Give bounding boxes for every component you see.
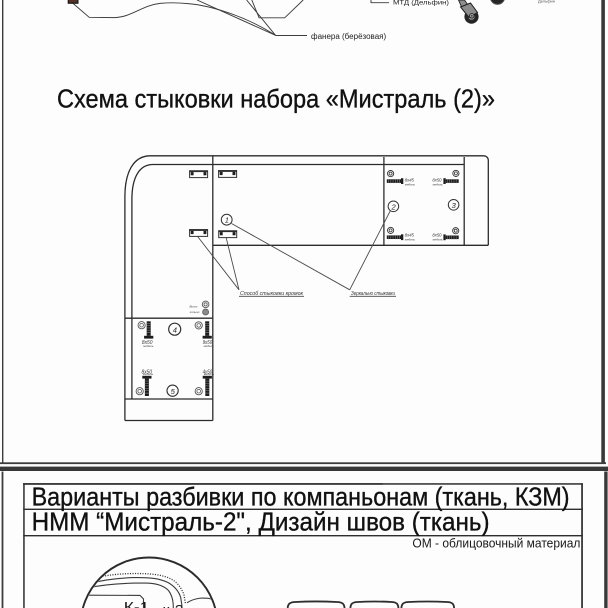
svg-text:4: 4 [173,325,177,334]
svg-text:Варианты разбивки по компаньон: Варианты разбивки по компаньонам (ткань,… [32,484,570,512]
svg-text:мебель: мебель [433,182,444,186]
svg-text:Схема стыковки набора «Мистрал: Схема стыковки набора «Мистраль (2)» [57,84,495,114]
svg-text:мебель: мебель [433,237,444,241]
svg-text:1: 1 [225,216,229,225]
svg-text:мебель: мебель [143,372,154,376]
svg-text:Дельфин: Дельфин [538,0,555,4]
svg-text:Способ стыковки кромок: Способ стыковки кромок [240,291,304,297]
svg-text:мебель: мебель [143,344,154,348]
svg-text:ОМ - облицовочный материал: ОМ - облицовочный материал [412,537,580,551]
svg-text:к-2: к-2 [163,602,184,608]
svg-text:2: 2 [390,202,396,211]
svg-text:кольцо: кольцо [190,310,200,314]
svg-text:Зеркально стыковки: Зеркально стыковки [351,291,395,297]
svg-text:К-1: К-1 [124,599,150,608]
svg-text:мебель: мебель [405,182,416,186]
svg-text:МТД (Дельфин): МТД (Дельфин) [393,0,449,7]
svg-text:НММ “Мистраль-2", Дизайн швов: НММ “Мистраль-2", Дизайн швов (ткань) [32,509,490,537]
svg-text:мебель: мебель [204,372,215,376]
svg-text:Винт: Винт [190,305,198,309]
svg-text:мебель: мебель [204,344,215,348]
svg-text:фанера (берёзовая): фанера (берёзовая) [311,32,386,41]
svg-text:мебель: мебель [405,237,416,241]
